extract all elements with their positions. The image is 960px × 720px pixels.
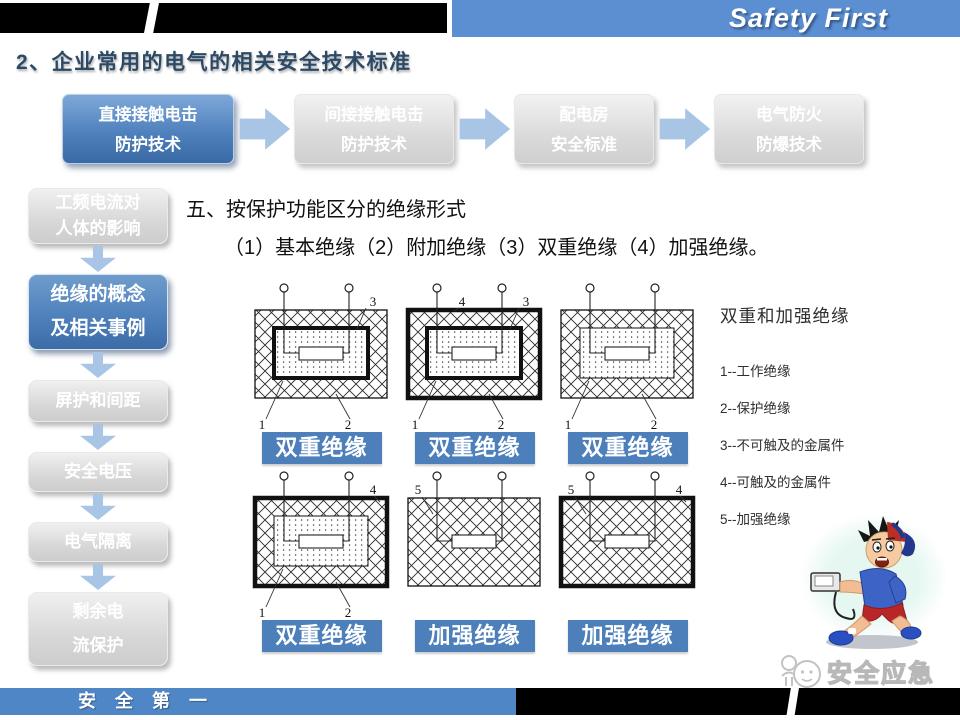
sidebar-item-label: 及相关事例 [29, 312, 167, 346]
watermark-logo-icon [778, 652, 822, 692]
flow-step-label-line1: 电气防火 [715, 100, 863, 130]
sidebar-item-label: 工频电流对 [29, 190, 167, 216]
flow-step-distribution-room[interactable]: 配电房 安全标准 [514, 94, 654, 164]
sidebar-item-label: 人体的影响 [29, 216, 167, 242]
sidebar-item-label: 剩余电 [29, 595, 167, 629]
insulation-diagram-2: 4312 双重绝缘 [402, 280, 547, 464]
diagram-number-label: 4 [675, 482, 682, 497]
diagram-number-label: 2 [344, 417, 351, 432]
insulation-diagram-6: 54 加强绝缘 [555, 468, 700, 652]
flow-step-fire-explosion[interactable]: 电气防火 防爆技术 [714, 94, 864, 164]
top-blue-bar: Safety First [452, 0, 960, 37]
insulation-schematic: 5 [405, 468, 545, 620]
legend-item: 4--可触及的金属件 [720, 471, 958, 491]
diagram-number-label: 2 [650, 417, 657, 432]
live-element [299, 347, 343, 360]
flow-step-direct-contact[interactable]: 直接接触电击 防护技术 [62, 94, 234, 164]
flow-step-label-line1: 间接接触电击 [295, 100, 453, 130]
circle-terminal-icon [586, 284, 594, 292]
page-title: 2、企业常用的电气的相关安全技术标准 [16, 46, 412, 76]
sidebar: 工频电流对 人体的影响 绝缘的概念 及相关事例 屏护和间距 安全电压 电气隔离 … [28, 188, 168, 666]
diagram-number-label: 3 [522, 294, 529, 309]
legend-item: 2--保护绝缘 [720, 397, 958, 417]
section-heading: 五、按保护功能区分的绝缘形式 [186, 193, 466, 222]
insulation-diagram-3: 12 双重绝缘 [555, 280, 700, 464]
footer-black-bar [516, 688, 960, 715]
insulation-schematic: 54 [558, 468, 698, 620]
circle-terminal-icon [280, 284, 288, 292]
sidebar-item-label: 流保护 [29, 629, 167, 663]
insulation-schematic: 12 [558, 280, 698, 432]
chevron-down-icon [80, 494, 116, 520]
footer-slogan-bar: 安 全 第 一 [0, 688, 516, 715]
insulation-diagram-5: 5 加强绝缘 [402, 468, 547, 652]
sidebar-item-label: 电气隔离 [29, 529, 167, 555]
circle-terminal-icon [345, 472, 353, 480]
flow-step-label-line2: 防爆技术 [715, 130, 863, 160]
sidebar-item-label: 绝缘的概念 [29, 278, 167, 312]
diagram-number-label: 5 [567, 482, 574, 497]
diagram-number-label: 5 [414, 482, 421, 497]
section-subheading: （1）基本绝缘（2）附加绝缘（3）双重绝缘（4）加强绝缘。 [224, 231, 769, 260]
sidebar-item-safe-voltage[interactable]: 安全电压 [28, 452, 168, 492]
brand-text: Safety First [729, 3, 888, 34]
chevron-right-icon [655, 103, 713, 155]
flow-step-label-line2: 防护技术 [63, 130, 233, 160]
flow-step-label-line1: 配电房 [515, 100, 653, 130]
insulation-schematic: 412 [252, 468, 392, 620]
circle-terminal-icon [433, 284, 441, 292]
flow-step-label-line2: 安全标准 [515, 130, 653, 160]
diagram-number-label: 1 [258, 605, 265, 620]
diagram-caption-badge: 双重绝缘 [568, 432, 688, 464]
circle-terminal-icon [345, 284, 353, 292]
sidebar-item-label: 安全电压 [29, 459, 167, 485]
diagram-number-label: 1 [258, 417, 265, 432]
circle-terminal-icon [498, 472, 506, 480]
sidebar-item-label: 屏护和间距 [29, 388, 167, 414]
insulation-diagram-4: 412 双重绝缘 [249, 468, 394, 652]
diagram-number-label: 4 [369, 482, 376, 497]
insulation-schematic: 312 [252, 280, 392, 432]
chevron-down-icon [80, 424, 116, 450]
diagram-caption-badge: 双重绝缘 [262, 432, 382, 464]
running-boy-illustration [792, 512, 952, 654]
insulation-diagram-1: 312 双重绝缘 [249, 280, 394, 464]
sidebar-item-residual-current[interactable]: 剩余电 流保护 [28, 592, 168, 666]
live-element [605, 347, 649, 360]
diagram-number-label: 2 [497, 417, 504, 432]
watermark-text: 安全应急 [827, 654, 935, 690]
diagram-caption-badge: 双重绝缘 [262, 620, 382, 652]
circle-terminal-icon [586, 472, 594, 480]
chevron-right-icon [455, 103, 513, 155]
diagram-caption-badge: 双重绝缘 [415, 432, 535, 464]
legend-item: 1--工作绝缘 [720, 360, 958, 380]
diagram-number-label: 1 [564, 417, 571, 432]
circle-terminal-icon [498, 284, 506, 292]
diagram-caption-badge: 加强绝缘 [415, 620, 535, 652]
insulation-schematic: 4312 [405, 280, 545, 432]
circle-terminal-icon [433, 472, 441, 480]
diagram-number-label: 3 [369, 294, 376, 309]
slide: Safety First 2、企业常用的电气的相关安全技术标准 直接接触电击 防… [0, 0, 960, 720]
chevron-down-icon [80, 352, 116, 378]
live-element [605, 535, 649, 548]
sidebar-item-power-frequency[interactable]: 工频电流对 人体的影响 [28, 188, 168, 244]
live-element [299, 535, 343, 548]
sidebar-item-insulation-concept[interactable]: 绝缘的概念 及相关事例 [28, 274, 168, 350]
sidebar-item-screening-clearance[interactable]: 屏护和间距 [28, 380, 168, 422]
top-black-bar [0, 3, 447, 33]
process-flow: 直接接触电击 防护技术 间接接触电击 防护技术 配电房 安全标准 电气防火 防爆… [62, 93, 864, 165]
live-element [452, 535, 496, 548]
flow-step-indirect-contact[interactable]: 间接接触电击 防护技术 [294, 94, 454, 164]
chevron-down-icon [80, 564, 116, 590]
chevron-down-icon [80, 246, 116, 272]
diagram-number-label: 4 [458, 294, 465, 309]
legend-title: 双重和加强绝缘 [720, 303, 958, 328]
flow-step-label-line2: 防护技术 [295, 130, 453, 160]
diagram-legend: 双重和加强绝缘 1--工作绝缘 2--保护绝缘 3--不可触及的金属件 4--可… [720, 303, 958, 545]
sidebar-item-electrical-isolation[interactable]: 电气隔离 [28, 522, 168, 562]
diagram-number-label: 1 [411, 417, 418, 432]
live-element [452, 347, 496, 360]
circle-terminal-icon [651, 284, 659, 292]
circle-terminal-icon [280, 472, 288, 480]
legend-item: 3--不可触及的金属件 [720, 434, 958, 454]
watermark: 安全应急 [778, 652, 935, 692]
circle-terminal-icon [651, 472, 659, 480]
chevron-right-icon [235, 103, 293, 155]
diagram-caption-badge: 加强绝缘 [568, 620, 688, 652]
diagram-number-label: 2 [344, 605, 351, 620]
flow-step-label-line1: 直接接触电击 [63, 100, 233, 130]
